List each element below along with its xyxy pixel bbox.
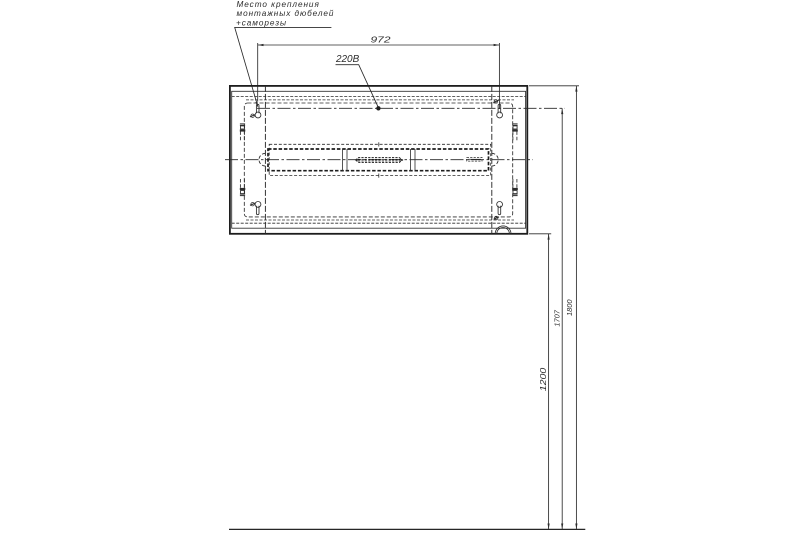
svg-text:1707: 1707 — [552, 309, 561, 326]
svg-text:монтажных дюбелей: монтажных дюбелей — [237, 9, 335, 18]
svg-text:Место крепления: Место крепления — [237, 0, 320, 9]
svg-text:1200: 1200 — [539, 367, 548, 391]
svg-text:+саморезы: +саморезы — [236, 18, 287, 27]
svg-text:220В: 220В — [335, 54, 360, 65]
svg-text:972: 972 — [371, 35, 391, 45]
svg-text:1800: 1800 — [565, 300, 574, 317]
